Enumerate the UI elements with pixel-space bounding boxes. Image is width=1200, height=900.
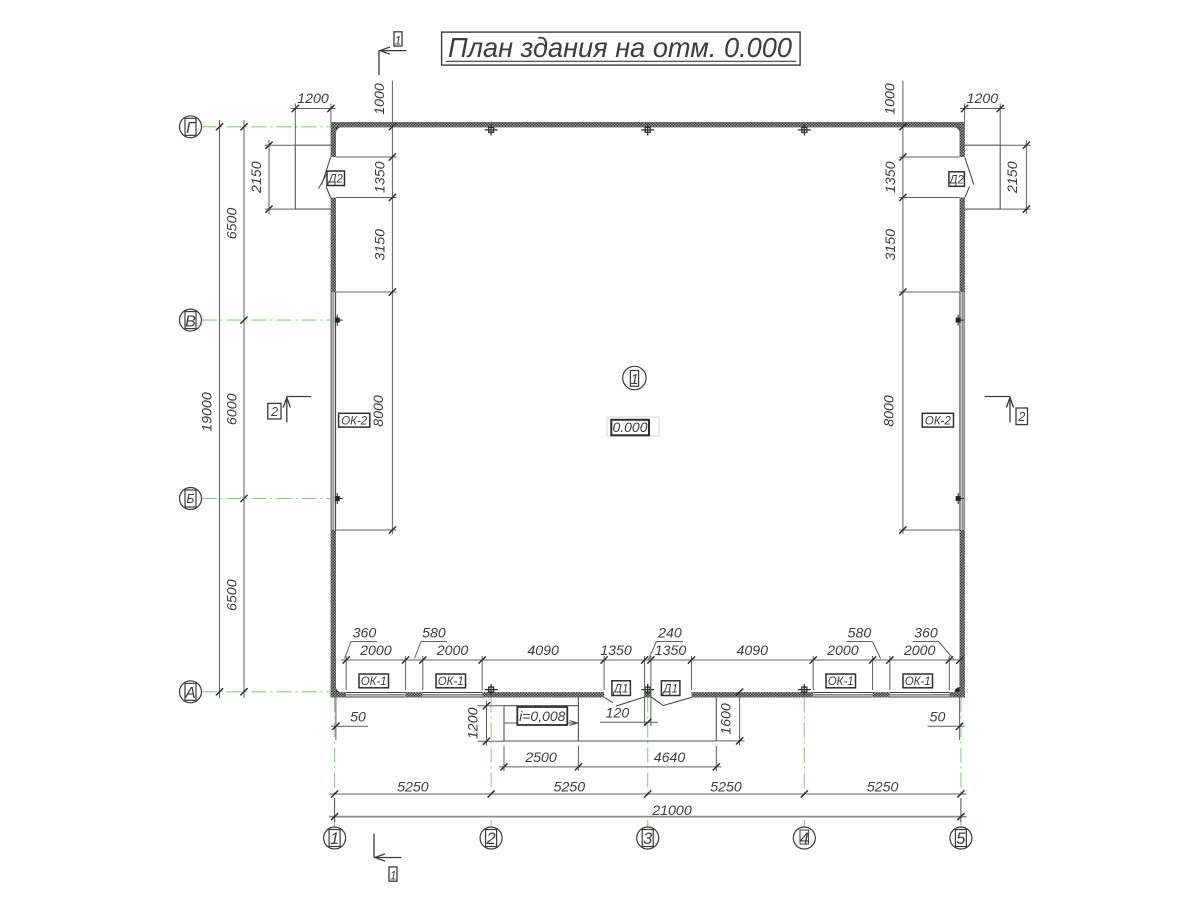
svg-text:4090: 4090 [527,643,559,659]
svg-text:Д1: Д1 [612,684,629,696]
svg-text:1200: 1200 [297,91,329,107]
svg-text:360: 360 [914,626,938,642]
svg-text:1000: 1000 [372,83,388,115]
svg-text:1350: 1350 [600,643,632,659]
svg-text:2000: 2000 [826,643,859,659]
svg-text:2000: 2000 [903,643,936,659]
svg-text:4640: 4640 [654,750,686,766]
svg-text:0.000: 0.000 [612,419,647,435]
svg-text:1600: 1600 [719,703,735,735]
svg-text:ОК-2: ОК-2 [925,415,952,427]
svg-text:1: 1 [395,33,402,47]
svg-text:2000: 2000 [359,643,392,659]
svg-text:5250: 5250 [867,780,899,796]
svg-text:8000: 8000 [371,395,387,427]
svg-text:3: 3 [643,830,653,848]
svg-text:50: 50 [350,710,366,726]
svg-text:4090: 4090 [737,643,769,659]
svg-text:1: 1 [330,830,339,848]
svg-text:ОК-2: ОК-2 [341,415,368,427]
svg-text:1200: 1200 [466,707,482,739]
svg-text:5: 5 [956,830,966,848]
svg-text:5250: 5250 [554,780,586,796]
svg-text:1: 1 [390,868,397,882]
svg-text:6500: 6500 [225,579,241,611]
svg-text:Д1: Д1 [661,684,678,696]
svg-text:2150: 2150 [1005,161,1021,194]
svg-text:1350: 1350 [655,643,687,659]
svg-text:В: В [185,313,196,330]
svg-text:i=0,008: i=0,008 [519,708,566,724]
svg-text:ОК-1: ОК-1 [438,676,464,688]
svg-text:План здания на отм. 0.000: План здания на отм. 0.000 [448,32,793,63]
svg-text:3150: 3150 [373,229,389,261]
svg-text:ОК-1: ОК-1 [361,676,387,688]
svg-text:2150: 2150 [249,161,265,194]
svg-text:2: 2 [1017,410,1025,424]
svg-text:2000: 2000 [436,643,469,659]
svg-text:580: 580 [848,626,872,642]
svg-text:1: 1 [630,372,638,388]
svg-text:2: 2 [486,830,496,848]
svg-text:6000: 6000 [225,393,241,425]
svg-text:1350: 1350 [373,161,389,193]
svg-text:ОК-1: ОК-1 [828,676,854,688]
svg-text:А: А [184,685,196,702]
svg-text:Б: Б [186,492,194,506]
svg-text:Г: Г [186,120,196,137]
svg-text:4: 4 [800,830,809,848]
svg-text:19000: 19000 [200,392,216,432]
svg-text:Д2: Д2 [326,174,343,186]
svg-text:5250: 5250 [710,780,742,796]
svg-text:21000: 21000 [651,803,692,819]
svg-text:8000: 8000 [882,395,898,427]
svg-text:2: 2 [270,405,278,419]
svg-text:50: 50 [930,710,946,726]
svg-text:2500: 2500 [524,750,557,766]
svg-text:1350: 1350 [883,161,899,193]
svg-text:ОК-1: ОК-1 [905,676,931,688]
svg-text:1000: 1000 [883,83,899,115]
svg-text:3150: 3150 [883,229,899,261]
svg-text:5250: 5250 [397,780,429,796]
svg-text:240: 240 [657,626,682,642]
svg-text:Д2: Д2 [947,174,964,186]
svg-text:1200: 1200 [967,91,999,107]
svg-text:360: 360 [353,626,377,642]
svg-text:120: 120 [606,706,630,722]
svg-text:580: 580 [422,626,446,642]
svg-text:6500: 6500 [225,208,241,240]
